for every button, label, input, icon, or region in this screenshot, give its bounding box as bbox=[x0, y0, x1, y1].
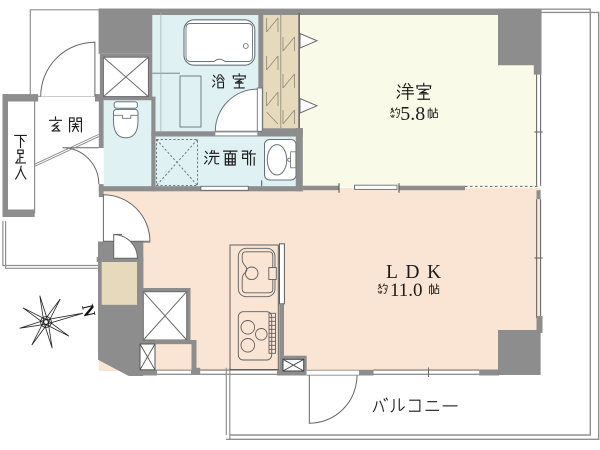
svg-text:5.8: 5.8 bbox=[400, 103, 425, 125]
svg-text:11.0: 11.0 bbox=[390, 280, 423, 301]
